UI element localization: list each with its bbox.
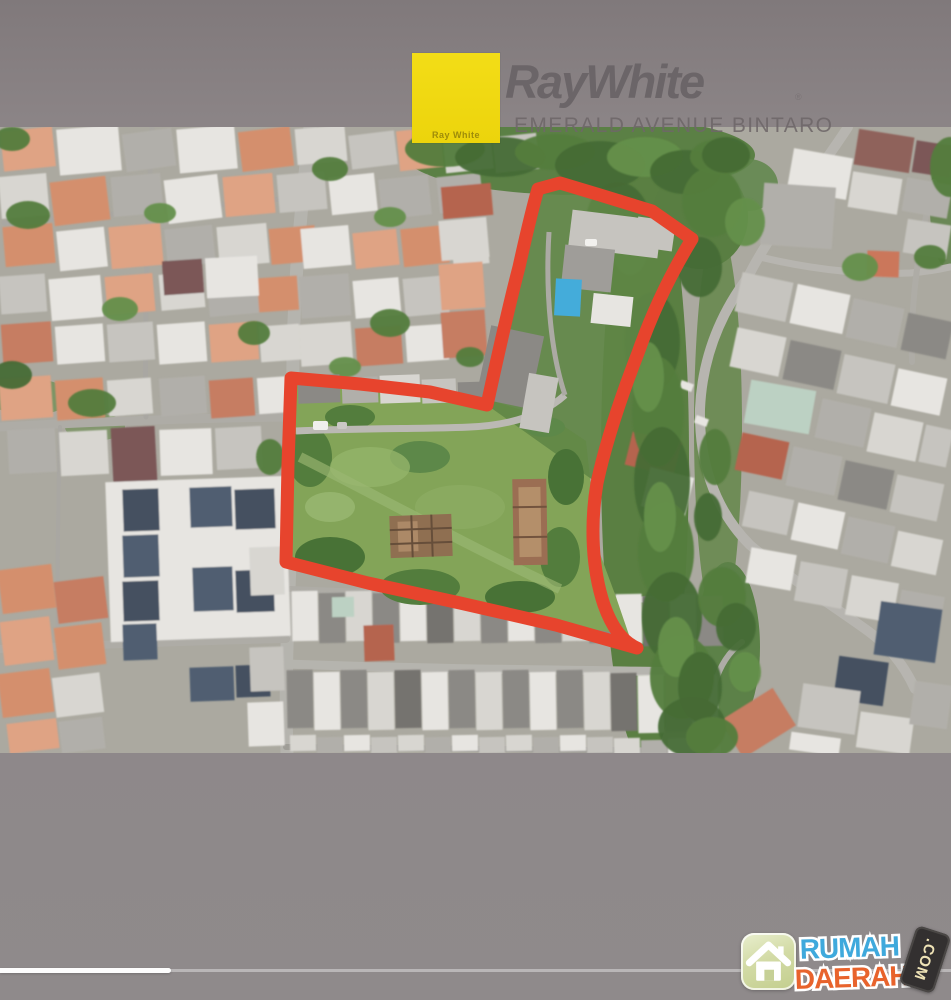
trademark-mark: ® — [795, 92, 802, 102]
screenshot-root: Ray White RayWhite ® EMERALD AVENUE BINT… — [0, 0, 951, 1000]
watermark-word-1: RUMAH — [799, 930, 899, 964]
map-scene — [0, 127, 951, 753]
watermark-text: RUMAH DAERAH — [794, 926, 920, 996]
brand-name: RayWhite — [505, 54, 925, 109]
rumahdaerah-watermark: RUMAH DAERAH .COM — [737, 926, 951, 996]
header: Ray White RayWhite ® EMERALD AVENUE BINT… — [0, 0, 951, 127]
aerial-photo — [0, 127, 951, 753]
photo-wash — [0, 127, 951, 753]
office-subtitle: EMERALD AVENUE BINTARO — [514, 114, 833, 138]
video-progress-fill[interactable] — [0, 968, 171, 973]
raywhite-logo-mark: Ray White — [412, 53, 500, 143]
raywhite-logo-caption: Ray White — [412, 130, 500, 140]
house-icon — [741, 933, 796, 990]
watermark-word-2: DAERAH — [794, 960, 909, 995]
